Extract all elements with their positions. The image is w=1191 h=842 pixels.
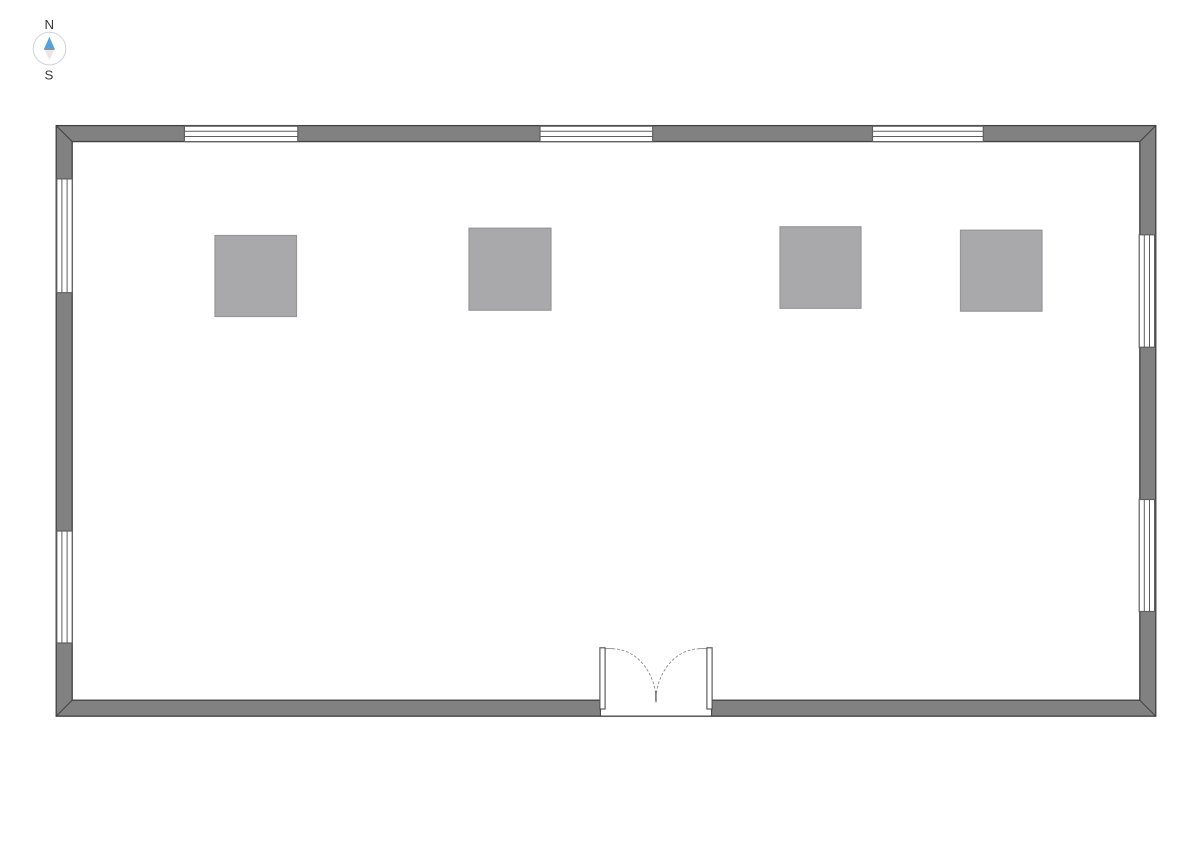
svg-text:N: N: [44, 17, 54, 32]
svg-text:S: S: [44, 68, 53, 83]
